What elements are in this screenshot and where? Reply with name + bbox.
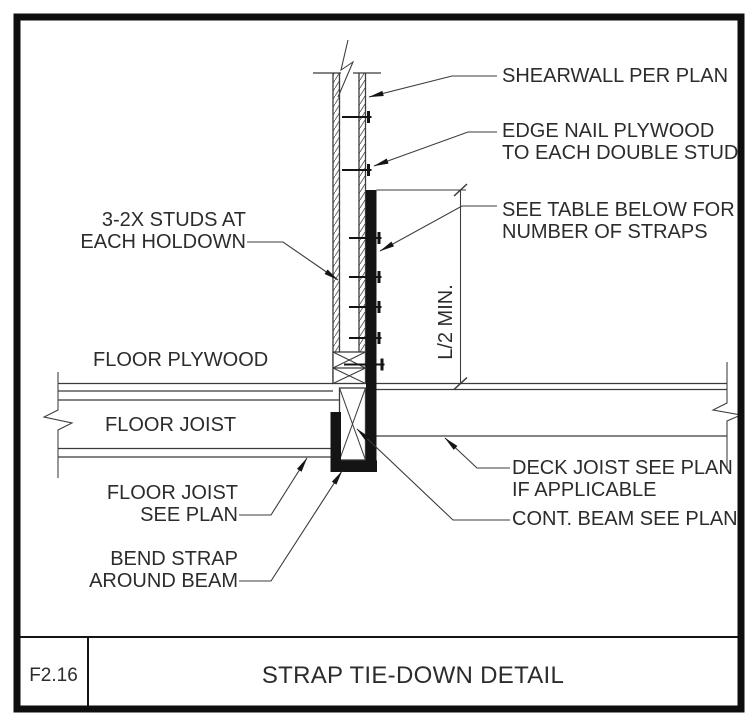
leader-floor-joist-see-plan <box>239 458 307 515</box>
label-floor-plywood: FLOOR PLYWOOD <box>93 349 268 371</box>
callout-see-table-line1: SEE TABLE BELOW FOR <box>502 199 735 221</box>
leader-shearwall <box>369 76 497 97</box>
callout-edge-nail: EDGE NAIL PLYWOOD TO EACH DOUBLE STUD <box>502 120 738 164</box>
callout-studs-line1: 3-2X STUDS AT <box>58 209 246 231</box>
blocking <box>333 352 366 384</box>
leader-bend-strap <box>239 471 342 581</box>
continuous-beam <box>340 388 366 460</box>
callout-fjsp-line2: SEE PLAN <box>58 504 238 526</box>
callout-see-table-line2: NUMBER OF STRAPS <box>502 221 735 243</box>
leader-cont-beam <box>357 429 510 520</box>
callout-see-table: SEE TABLE BELOW FOR NUMBER OF STRAPS <box>502 199 735 243</box>
label-floor-joist: FLOOR JOIST <box>105 414 236 436</box>
leader-deck-joist <box>445 438 510 468</box>
callout-bend-strap-line2: AROUND BEAM <box>58 570 238 592</box>
callout-edge-nail-line1: EDGE NAIL PLYWOOD <box>502 120 738 142</box>
leader-studs <box>247 242 338 280</box>
callout-shearwall-line1: SHEARWALL PER PLAN <box>502 65 728 87</box>
callout-bend-strap-line1: BEND STRAP <box>58 548 238 570</box>
callout-deck-joist-line2: IF APPLICABLE <box>512 479 733 501</box>
callout-studs: 3-2X STUDS AT EACH HOLDOWN <box>58 209 246 253</box>
callout-bend-strap: BEND STRAP AROUND BEAM <box>58 548 238 592</box>
callout-floor-joist-see-plan: FLOOR JOIST SEE PLAN <box>58 482 238 526</box>
callout-cont-beam: CONT. BEAM SEE PLAN <box>512 508 738 530</box>
drawing-sheet: SHEARWALL PER PLAN EDGE NAIL PLYWOOD TO … <box>0 0 750 726</box>
callout-edge-nail-line2: TO EACH DOUBLE STUD <box>502 142 738 164</box>
leader-edge-nail <box>374 132 497 166</box>
detail-title: STRAP TIE-DOWN DETAIL <box>88 663 738 689</box>
dimension-label: L/2 MIN. <box>435 262 459 382</box>
callout-shearwall: SHEARWALL PER PLAN <box>502 65 728 87</box>
right-break-symbol <box>713 362 741 468</box>
detail-number: F2.16 <box>20 665 87 687</box>
callout-studs-line2: EACH HOLDOWN <box>58 231 246 253</box>
wall-break-symbol <box>338 40 353 97</box>
deck-assembly-right <box>377 362 742 468</box>
callout-fjsp-line1: FLOOR JOIST <box>58 482 238 504</box>
callout-deck-joist: DECK JOIST SEE PLAN IF APPLICABLE <box>512 457 733 501</box>
leader-see-table <box>380 206 497 251</box>
callout-deck-joist-line1: DECK JOIST SEE PLAN <box>512 457 733 479</box>
left-break-symbol <box>44 372 72 478</box>
